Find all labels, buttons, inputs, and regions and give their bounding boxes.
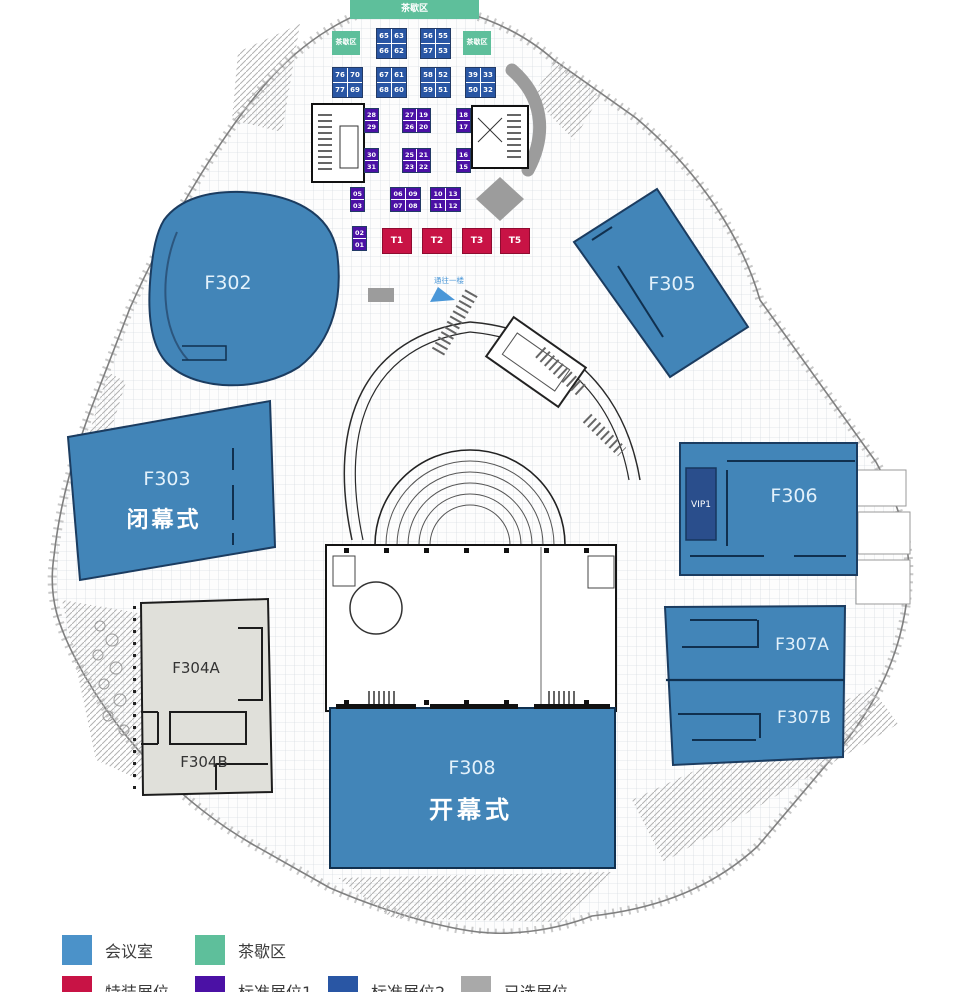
legend-label: 标准展位2 — [371, 979, 445, 992]
booth-27[interactable]: 27 — [403, 109, 416, 120]
legend-swatch — [461, 976, 491, 992]
booth-21[interactable]: 21 — [417, 149, 430, 160]
booth-11[interactable]: 11 — [431, 200, 445, 211]
booth-22[interactable]: 22 — [417, 161, 430, 172]
booth-T2[interactable]: T2 — [422, 228, 452, 254]
legend-item: 已选展位 — [461, 976, 568, 992]
booth-33[interactable]: 33 — [481, 68, 495, 82]
booth-08[interactable]: 08 — [406, 200, 420, 211]
booth-30[interactable]: 30 — [365, 149, 378, 160]
booth-12[interactable]: 12 — [446, 200, 460, 211]
booth-group: 67616860 — [376, 67, 407, 98]
booth-67[interactable]: 67 — [377, 68, 391, 82]
legend-item: 标准展位1 — [195, 976, 312, 992]
booth-20[interactable]: 20 — [417, 121, 430, 132]
booth-25[interactable]: 25 — [403, 149, 416, 160]
booth-55[interactable]: 55 — [436, 29, 450, 43]
booth-group: 76707769 — [332, 67, 363, 98]
booth-T5[interactable]: T5 — [500, 228, 530, 254]
booth-17[interactable]: 17 — [457, 121, 470, 132]
booth-group: 2829 — [364, 108, 379, 133]
booth-05[interactable]: 05 — [351, 188, 364, 199]
booth-group: 10131112 — [430, 187, 461, 212]
booth-group: 58525951 — [420, 67, 451, 98]
booth-50[interactable]: 50 — [466, 83, 480, 97]
booth-57[interactable]: 57 — [421, 44, 435, 58]
booth-group: 3031 — [364, 148, 379, 173]
booth-09[interactable]: 09 — [406, 188, 420, 199]
booth-06[interactable]: 06 — [391, 188, 405, 199]
booth-group: 1615 — [456, 148, 471, 173]
legend-label: 已选展位 — [504, 979, 568, 992]
booth-26[interactable]: 26 — [403, 121, 416, 132]
legend-label: 标准展位1 — [238, 979, 312, 992]
booth-52[interactable]: 52 — [436, 68, 450, 82]
legend-swatch — [195, 935, 225, 965]
booth-51[interactable]: 51 — [436, 83, 450, 97]
booth-23[interactable]: 23 — [403, 161, 416, 172]
booth-29[interactable]: 29 — [365, 121, 378, 132]
booth-61[interactable]: 61 — [392, 68, 406, 82]
booth-69[interactable]: 69 — [348, 83, 362, 97]
legend-item: 标准展位2 — [328, 976, 445, 992]
booth-56[interactable]: 56 — [421, 29, 435, 43]
floor-plan-page: F302 F303 闭幕式 F304A F304B F305 — [0, 0, 958, 992]
booth-58[interactable]: 58 — [421, 68, 435, 82]
booth-group: 1817 — [456, 108, 471, 133]
legend-item: 茶歇区 — [195, 935, 286, 965]
booth-28[interactable]: 28 — [365, 109, 378, 120]
booth-T1[interactable]: T1 — [382, 228, 412, 254]
booth-group: 65636662 — [376, 28, 407, 59]
booth-70[interactable]: 70 — [348, 68, 362, 82]
legend-label: 特装展位 — [105, 979, 169, 992]
booth-07[interactable]: 07 — [391, 200, 405, 211]
legend-item: 特装展位 — [62, 976, 169, 992]
booth-19[interactable]: 19 — [417, 109, 430, 120]
booth-62[interactable]: 62 — [392, 44, 406, 58]
legend-swatch — [62, 935, 92, 965]
booth-66[interactable]: 66 — [377, 44, 391, 58]
booth-15[interactable]: 15 — [457, 161, 470, 172]
legend-item: 会议室 — [62, 935, 153, 965]
booth-01[interactable]: 01 — [353, 239, 366, 250]
tea-break-area-2: 茶歇区 — [332, 31, 360, 55]
booth-16[interactable]: 16 — [457, 149, 470, 160]
booth-39[interactable]: 39 — [466, 68, 480, 82]
booth-63[interactable]: 63 — [392, 29, 406, 43]
booth-68[interactable]: 68 — [377, 83, 391, 97]
booth-65[interactable]: 65 — [377, 29, 391, 43]
legend-swatch — [195, 976, 225, 992]
tea-break-area-3: 茶歇区 — [463, 31, 491, 55]
booth-T3[interactable]: T3 — [462, 228, 492, 254]
legend-label: 会议室 — [105, 938, 153, 962]
booth-03[interactable]: 03 — [351, 200, 364, 211]
booth-02[interactable]: 02 — [353, 227, 366, 238]
booth-13[interactable]: 13 — [446, 188, 460, 199]
booths-and-legend-layer: 茶歇区茶歇区茶歇区6563666256555753767077696761686… — [0, 0, 958, 992]
booth-31[interactable]: 31 — [365, 161, 378, 172]
booth-59[interactable]: 59 — [421, 83, 435, 97]
booth-group: 25212322 — [402, 148, 431, 173]
booth-group: 0503 — [350, 187, 365, 212]
tea-break-area-1: 茶歇区 — [350, 0, 479, 19]
booth-60[interactable]: 60 — [392, 83, 406, 97]
legend-swatch — [62, 976, 92, 992]
booth-group: 27192620 — [402, 108, 431, 133]
booth-group: 56555753 — [420, 28, 451, 59]
booth-group: 0201 — [352, 226, 367, 251]
booth-53[interactable]: 53 — [436, 44, 450, 58]
booth-76[interactable]: 76 — [333, 68, 347, 82]
legend-label: 茶歇区 — [238, 938, 286, 962]
booth-32[interactable]: 32 — [481, 83, 495, 97]
booth-77[interactable]: 77 — [333, 83, 347, 97]
booth-group: 39335032 — [465, 67, 496, 98]
booth-10[interactable]: 10 — [431, 188, 445, 199]
booth-group: 06090708 — [390, 187, 421, 212]
legend-swatch — [328, 976, 358, 992]
booth-18[interactable]: 18 — [457, 109, 470, 120]
